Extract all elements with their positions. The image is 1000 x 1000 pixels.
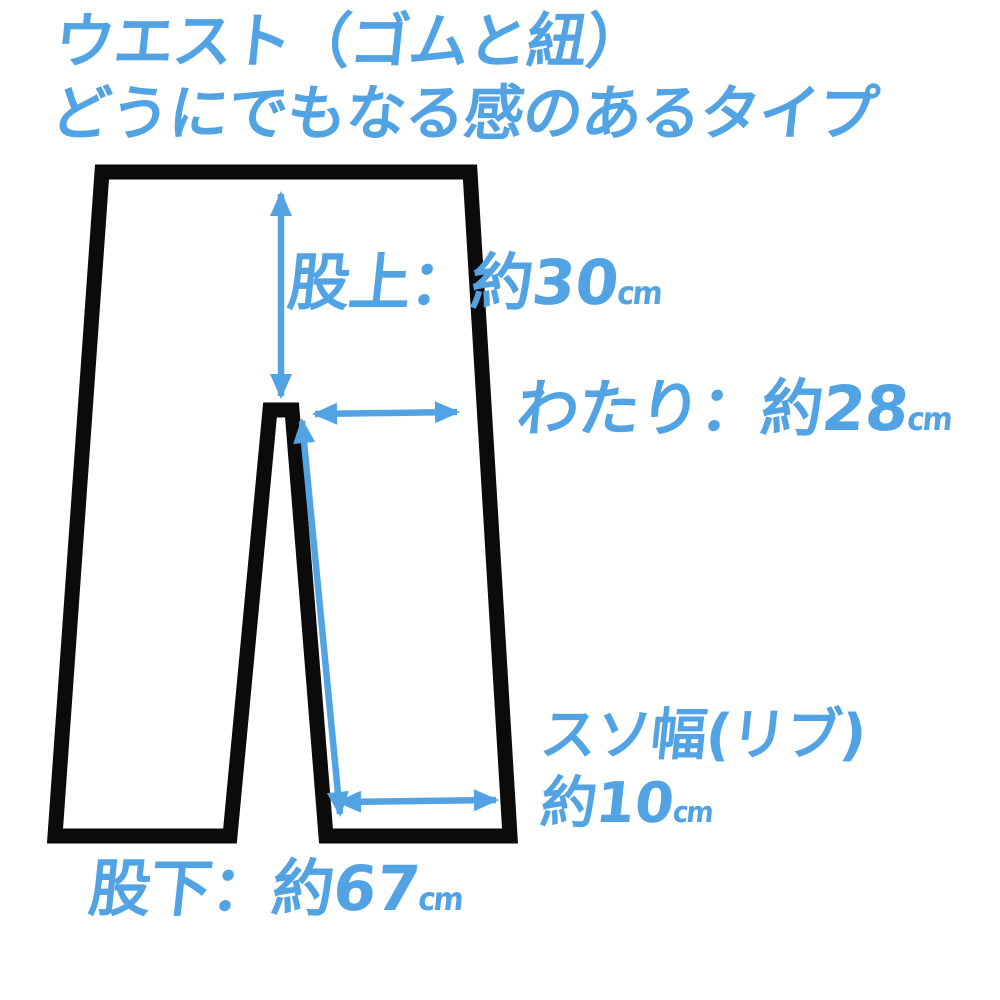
pants-size-chart: ウエスト（ゴムと紐） どうにでもなる感のあるタイプ 股上：約30cm わたり：約… (0, 0, 1000, 1000)
inseam-unit: cm (417, 880, 464, 918)
hem-label-text: 約 (538, 771, 600, 836)
hem-width-label: 約10cm (538, 776, 716, 832)
pants-diagram (0, 0, 1000, 1000)
inseam-value: 67 (329, 852, 423, 925)
inseam-label: 股下：約67cm (86, 858, 466, 920)
rise-label: 股上：約30cm (285, 252, 665, 314)
hem-unit: cm (671, 795, 713, 829)
thigh-width-label: わたり：約28cm (514, 378, 955, 440)
hem-width-title: スソ幅(リブ) (538, 708, 868, 764)
title-line-2: どうにでもなる感のあるタイプ (48, 84, 880, 144)
rise-unit: cm (616, 274, 663, 312)
thigh-value: 28 (818, 372, 912, 445)
rise-value: 30 (528, 246, 622, 319)
inseam-label-text: 股下：約 (85, 852, 337, 925)
rise-label-text: 股上：約 (284, 246, 536, 319)
hem-title-text: スソ幅(リブ) (538, 703, 869, 768)
thigh-label-text: わたり：約 (513, 372, 826, 445)
thigh-width-arrow (315, 412, 457, 414)
hem-value: 10 (593, 771, 678, 836)
hem-width-arrow (339, 800, 496, 802)
thigh-unit: cm (906, 400, 953, 438)
title-line-1: ウエスト（ゴムと紐） (52, 12, 648, 72)
